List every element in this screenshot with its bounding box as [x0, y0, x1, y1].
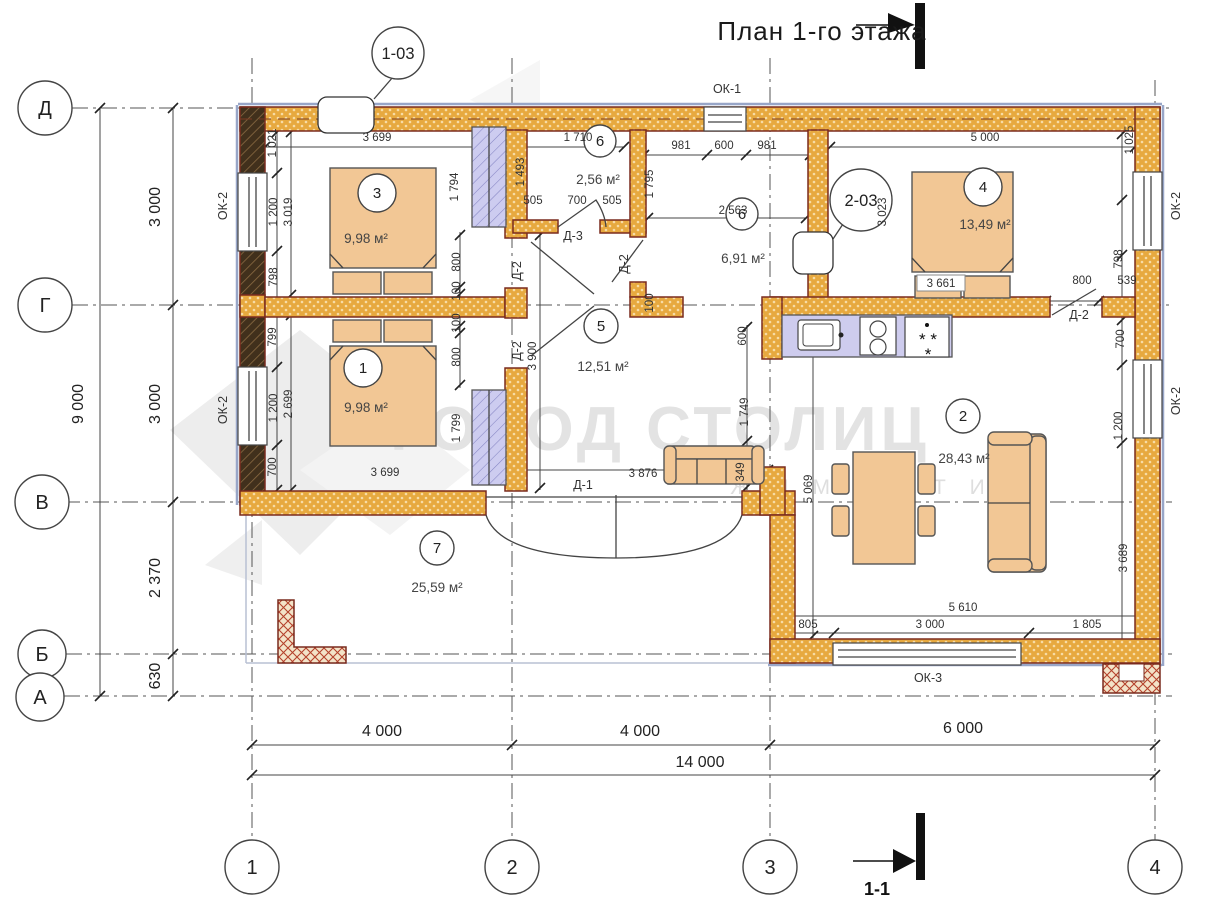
- dim-799: 799: [267, 327, 279, 346]
- dim-1795: 1 795: [644, 170, 656, 199]
- svg-text:1: 1: [246, 857, 257, 879]
- door-label-d1: Д-1: [573, 478, 593, 492]
- dim-3699-top: 3 699: [363, 132, 392, 144]
- chair: [832, 506, 849, 536]
- window-label-ok1: ОК-1: [713, 82, 741, 96]
- dim-100-c2: 100: [451, 313, 463, 332]
- wall-g-right: [770, 297, 1050, 317]
- callout-2-03-box: [793, 232, 833, 274]
- wall-hall-bedroom4: [808, 130, 828, 317]
- callout-1-03: 1-03: [372, 27, 424, 79]
- dim-3019: 3 019: [283, 198, 295, 227]
- dim-700-l: 700: [267, 457, 279, 476]
- axis-B: Б: [18, 630, 66, 678]
- dim-1200-r: 1 200: [1113, 412, 1125, 441]
- drawing-title: План 1-го этажа: [717, 16, 926, 46]
- dim-2370: 2 370: [147, 558, 164, 598]
- dim-5069: 5 069: [803, 475, 815, 504]
- dim-1749: 1 749: [739, 398, 751, 427]
- dim-800-c1: 800: [451, 252, 463, 271]
- callout-1-03-leader: [374, 77, 393, 99]
- dim-1493: 1 493: [515, 158, 527, 187]
- dim-1710: 1 710: [564, 132, 593, 144]
- door-label-d2-d: Д-2: [1069, 308, 1089, 322]
- svg-text:4: 4: [979, 179, 987, 196]
- dim-1025: 1 025: [1124, 126, 1136, 155]
- wall-outer-left-pier: [240, 295, 265, 317]
- room3-area: 9,98 м²: [344, 231, 388, 246]
- sofa-right: [988, 432, 1046, 572]
- svg-text:Г: Г: [40, 295, 51, 317]
- window-label-ok3: ОК-3: [914, 671, 942, 685]
- room7-area: 25,59 м²: [411, 580, 463, 595]
- dim-600-k: 600: [737, 326, 749, 345]
- svg-text:Б: Б: [35, 644, 48, 666]
- dim-805: 805: [798, 619, 817, 631]
- dim-700-r: 700: [1115, 329, 1127, 348]
- window-label-ok2-r2: ОК-2: [1169, 387, 1183, 415]
- kitchen-area: 6,91 м²: [721, 251, 765, 266]
- door-d1: [486, 495, 742, 558]
- window-ok3: [833, 643, 1021, 665]
- dim-6000: 6 000: [943, 720, 983, 737]
- dim-1799: 1 799: [451, 414, 463, 443]
- door-label-d2-a: Д-2: [510, 261, 524, 281]
- room-circle-7: 7: [420, 531, 454, 565]
- dim-3699-bot: 3 699: [371, 467, 400, 479]
- dim-100-k: 100: [644, 293, 656, 312]
- svg-text:1-03: 1-03: [381, 45, 414, 63]
- watermark-shape: [205, 520, 262, 585]
- chair: [918, 464, 935, 494]
- window-ok2-right-1: [1133, 172, 1162, 250]
- svg-text:1: 1: [359, 360, 367, 377]
- dim-9000: 9 000: [70, 384, 87, 424]
- sofa-top: [664, 446, 764, 484]
- dim-5610: 5 610: [949, 602, 978, 614]
- window-label-ok2-r1: ОК-2: [1169, 192, 1183, 220]
- room1-area: 9,98 м²: [344, 400, 388, 415]
- dim-1200-l2: 1 200: [268, 394, 280, 423]
- wall-kitchen-stub: [762, 297, 782, 359]
- dim-600: 600: [714, 140, 733, 152]
- svg-text:2: 2: [959, 408, 967, 425]
- room-circle-3: 3: [358, 174, 396, 212]
- window-ok2-right-2: [1133, 360, 1162, 438]
- wall-wc-bottom-left: [513, 220, 558, 233]
- svg-text:6: 6: [596, 133, 604, 150]
- dim-981-l: 981: [671, 140, 690, 152]
- fridge-star: *: [925, 345, 932, 364]
- dim-505-l: 505: [523, 195, 542, 207]
- dim-1200-l1: 1 200: [268, 198, 280, 227]
- dim-800-c2: 800: [451, 347, 463, 366]
- dim-800-door4: 800: [1072, 275, 1091, 287]
- dim-798-r: 798: [1113, 249, 1125, 268]
- svg-text:А: А: [33, 687, 47, 709]
- kitchen-stove-icon: [860, 317, 896, 355]
- svg-text:4: 4: [1149, 857, 1160, 879]
- wall-g-right-end: [1102, 297, 1135, 317]
- svg-text:5: 5: [597, 318, 605, 335]
- dim-3689: 3 689: [1118, 544, 1130, 573]
- svg-text:2: 2: [506, 857, 517, 879]
- room4-area: 13,49 м²: [959, 217, 1011, 232]
- wall-between-bedrooms: [265, 297, 505, 317]
- door-label-d2-b: Д-2: [510, 341, 524, 361]
- floor-plan-canvas: ГОРОД СТОЛИЦ Ж И М О С Т И: [0, 0, 1206, 923]
- dim-2699: 2 699: [283, 390, 295, 419]
- window-ok2-left-2: [238, 367, 267, 445]
- dim-100-c1: 100: [451, 281, 463, 300]
- dim-4000-b: 4 000: [620, 723, 660, 740]
- svg-text:3: 3: [373, 185, 381, 202]
- dim-3000-gv: 3 000: [147, 384, 164, 424]
- dim-3000-dg: 3 000: [147, 187, 164, 227]
- section-label: 1-1: [864, 879, 890, 899]
- wardrobe-bottom: [472, 390, 506, 485]
- axis-2: 2: [485, 840, 539, 894]
- dim-1794: 1 794: [449, 172, 461, 201]
- dim-539: 539: [1117, 275, 1136, 287]
- door-label-d3: Д-3: [563, 229, 583, 243]
- room6-area: 2,56 м²: [576, 172, 620, 187]
- svg-text:В: В: [35, 492, 48, 514]
- dim-349: 349: [735, 462, 747, 481]
- dim-14000: 14 000: [676, 754, 725, 771]
- dim-3876: 3 876: [629, 468, 658, 480]
- dim-1805: 1 805: [1073, 619, 1102, 631]
- watermark-text: ГОРОД СТОЛИЦ: [390, 395, 930, 464]
- dim-4000-a: 4 000: [362, 723, 402, 740]
- room-circle-4: 4: [964, 168, 1002, 206]
- svg-text:2-03: 2-03: [844, 192, 877, 210]
- svg-text:7: 7: [433, 540, 441, 557]
- terrace-corner-post: [278, 600, 346, 663]
- axis-V: В: [15, 475, 69, 529]
- floor-plan-drawing: ГОРОД СТОЛИЦ Ж И М О С Т И: [0, 0, 1206, 923]
- axis-A: А: [16, 673, 64, 721]
- wall-corridor-mid: [505, 288, 527, 318]
- axis-4: 4: [1128, 840, 1182, 894]
- kitchen-sink-icon: [798, 320, 844, 350]
- window-ok1: [704, 107, 746, 131]
- dim-3900: 3 900: [527, 342, 539, 371]
- dim-1021: 1 021: [267, 129, 279, 158]
- axis-1: 1: [225, 840, 279, 894]
- wall-v-left: [240, 491, 486, 515]
- room-circle-5: 5: [584, 309, 618, 343]
- dim-505-r: 505: [602, 195, 621, 207]
- axis-D: Д: [18, 81, 72, 135]
- wall-g-mid-stub: [630, 297, 683, 317]
- wardrobe-top: [472, 127, 506, 227]
- room-circle-1: 1: [344, 349, 382, 387]
- dim-700-wc: 700: [567, 195, 586, 207]
- dim-2563: 2 563: [719, 205, 748, 217]
- corner-post-notch: [1119, 664, 1144, 681]
- dim-798-l: 798: [268, 267, 280, 286]
- dim-981-r: 981: [757, 140, 776, 152]
- svg-text:Д: Д: [38, 98, 52, 120]
- dim-3023: 3 023: [877, 198, 889, 227]
- callout-2-03-leader: [833, 224, 843, 239]
- dining-table: [832, 452, 935, 564]
- wall-corridor-bottom: [505, 368, 527, 491]
- window-ok2-left-1: [238, 173, 267, 251]
- chair: [918, 506, 935, 536]
- window-label-ok2-l2: ОК-2: [216, 396, 230, 424]
- dim-5000: 5 000: [971, 132, 1000, 144]
- axis-G: Г: [18, 278, 72, 332]
- dim-3000-okno: 3 000: [916, 619, 945, 631]
- bed-room1: [330, 320, 436, 446]
- room-circle-2: 2: [946, 399, 980, 433]
- callout-1-03-box: [318, 97, 374, 133]
- door-label-d2-c: Д-2: [617, 254, 631, 274]
- section-marker-bottom: [853, 813, 925, 880]
- axis-3: 3: [743, 840, 797, 894]
- dim-3661: 3 661: [927, 278, 956, 290]
- chair: [832, 464, 849, 494]
- svg-text:3: 3: [764, 857, 775, 879]
- room5-area: 12,51 м²: [577, 359, 629, 374]
- dim-630: 630: [147, 663, 164, 690]
- window-label-ok2-l1: ОК-2: [216, 192, 230, 220]
- room2-area: 28,43 м²: [938, 451, 990, 466]
